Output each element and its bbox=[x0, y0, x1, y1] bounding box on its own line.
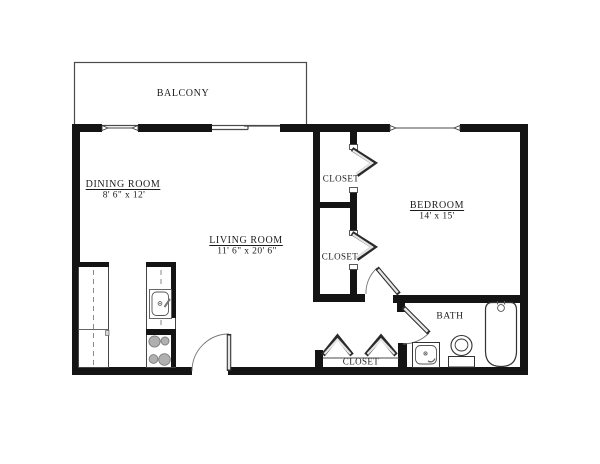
living-room-dimensions: 11' 6" x 20' 6" bbox=[217, 247, 277, 257]
closet-middle-label: CLOSET bbox=[322, 253, 358, 262]
balcony-label: BALCONY bbox=[157, 89, 210, 99]
bedroom-dimensions: 14' x 15' bbox=[419, 212, 455, 222]
tub-faucet-icon bbox=[498, 305, 505, 312]
bedroom-label: BEDROOM bbox=[410, 201, 464, 211]
closet-top-bifold-door bbox=[352, 149, 374, 175]
balcony-sliding-door bbox=[102, 126, 138, 131]
closet-bottom-bifold-doors bbox=[323, 337, 396, 355]
toilet bbox=[449, 336, 475, 368]
bedroom-door bbox=[366, 268, 399, 294]
bathtub bbox=[486, 301, 517, 367]
kitchen-cabinet-left bbox=[78, 262, 109, 368]
closet-bottom-label: CLOSET bbox=[343, 358, 379, 367]
living-room-label: LIVING ROOM bbox=[209, 236, 283, 246]
dining-room-dimensions: 8' 6" x 12' bbox=[103, 191, 146, 201]
kitchen-sink bbox=[150, 290, 172, 319]
bath-label: BATH bbox=[436, 312, 463, 322]
bath-door bbox=[403, 307, 429, 344]
floor-plan: BALCONY DINING ROOM 8' 6" x 12' LIVING R… bbox=[0, 0, 600, 464]
dining-window bbox=[212, 126, 280, 130]
closet-top-label: CLOSET bbox=[323, 175, 359, 184]
entry-door bbox=[192, 334, 229, 371]
dining-room-label: DINING ROOM bbox=[86, 180, 161, 190]
bedroom-window bbox=[390, 126, 460, 131]
bathroom-sink bbox=[413, 343, 440, 368]
floor-plan-drawing bbox=[0, 0, 600, 464]
